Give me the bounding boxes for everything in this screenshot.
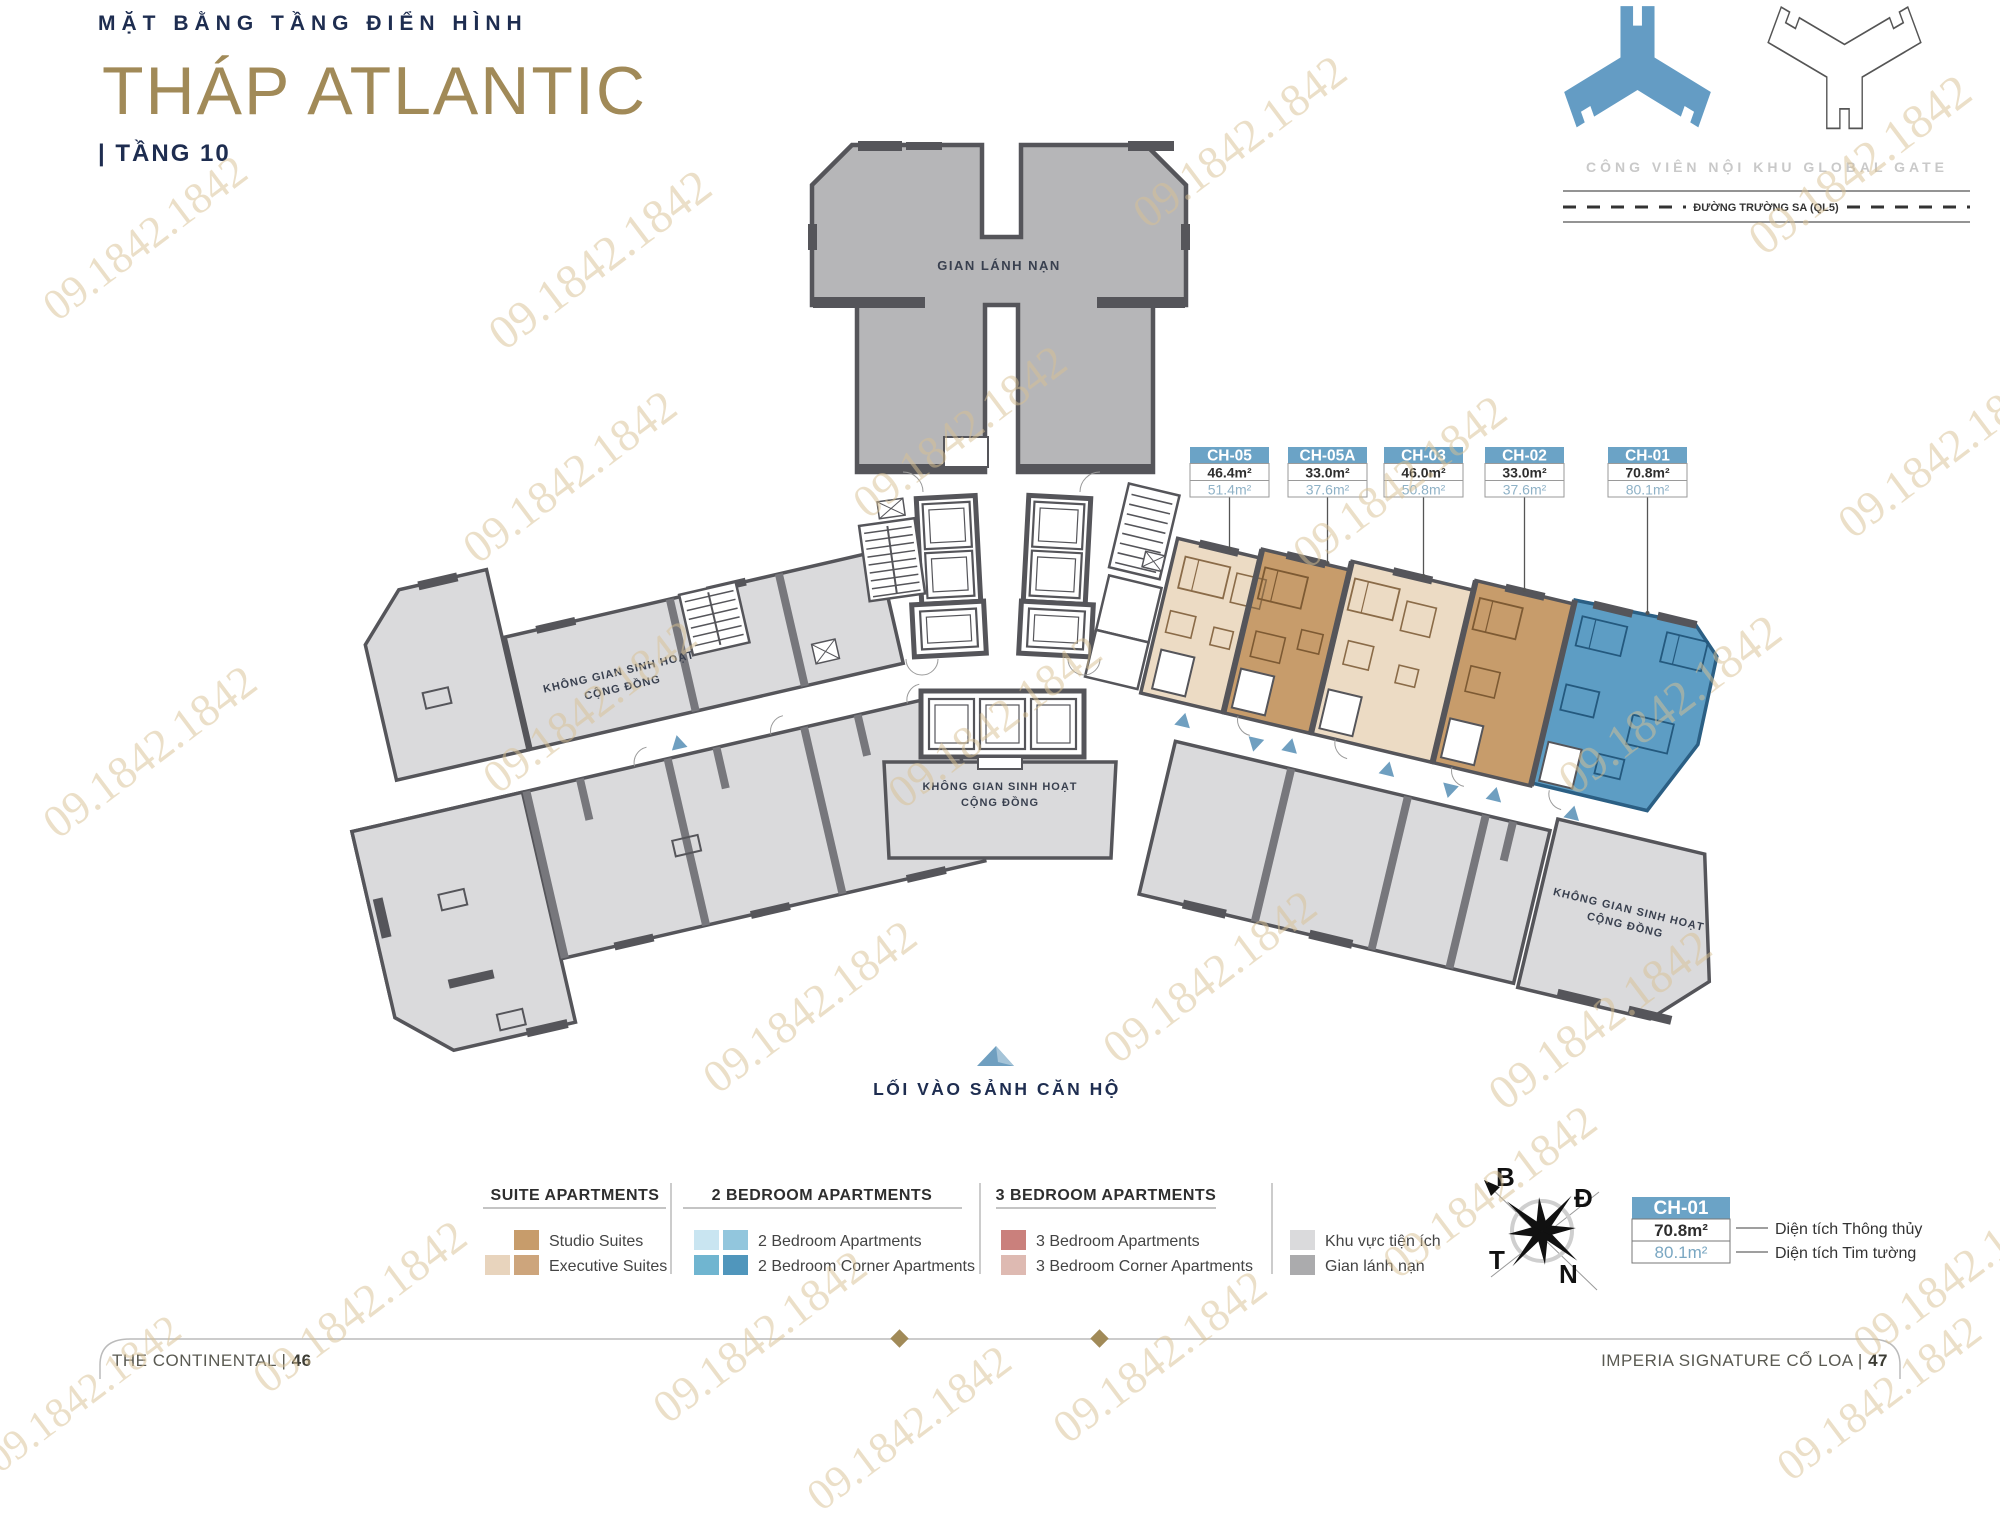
svg-text:CH-02: CH-02 [1502,448,1547,465]
svg-text:Studio Suites: Studio Suites [549,1233,643,1250]
svg-text:3 BEDROOM APARTMENTS: 3 BEDROOM APARTMENTS [996,1187,1217,1204]
svg-text:46.4m²: 46.4m² [1207,465,1252,481]
svg-text:3 Bedroom Corner Apartments: 3 Bedroom Corner Apartments [1036,1258,1253,1275]
svg-text:2 BEDROOM APARTMENTS: 2 BEDROOM APARTMENTS [712,1187,933,1204]
svg-text:SUITE APARTMENTS: SUITE APARTMENTS [491,1187,660,1204]
svg-text:Diện tích Tim tường: Diện tích Tim tường [1775,1245,1916,1262]
svg-text:51.4m²: 51.4m² [1208,482,1252,498]
svg-text:70.8m²: 70.8m² [1625,465,1670,481]
svg-text:33.0m²: 33.0m² [1502,465,1547,481]
svg-text:37.6m²: 37.6m² [1503,482,1547,498]
svg-text:70.8m²: 70.8m² [1654,1221,1708,1240]
svg-text:CH-05A: CH-05A [1300,448,1356,465]
svg-text:CH-05: CH-05 [1207,448,1252,465]
svg-text:Diện tích Thông thủy: Diện tích Thông thủy [1775,1221,1922,1238]
svg-text:3 Bedroom Apartments: 3 Bedroom Apartments [1036,1233,1200,1250]
svg-text:IMPERIA SIGNATURE CỔ LOA | 47: IMPERIA SIGNATURE CỔ LOA | 47 [1601,1351,1888,1370]
svg-text:80.1m²: 80.1m² [1626,482,1670,498]
svg-text:33.0m²: 33.0m² [1305,465,1350,481]
svg-text:CỘNG ĐỒNG: CỘNG ĐỒNG [961,796,1039,809]
svg-text:LỐI VÀO SẢNH CĂN HỘ: LỐI VÀO SẢNH CĂN HỘ [873,1078,1121,1099]
svg-text:CH-01: CH-01 [1625,448,1670,465]
svg-text:Đ: Đ [1574,1183,1593,1213]
svg-text:CH-01: CH-01 [1654,1198,1709,1219]
svg-text:80.1m²: 80.1m² [1655,1243,1708,1262]
svg-text:GIAN LÁNH NẠN: GIAN LÁNH NẠN [937,258,1061,273]
svg-text:N: N [1559,1259,1578,1289]
svg-text:T: T [1489,1245,1505,1275]
svg-text:Executive Suites: Executive Suites [549,1258,667,1275]
